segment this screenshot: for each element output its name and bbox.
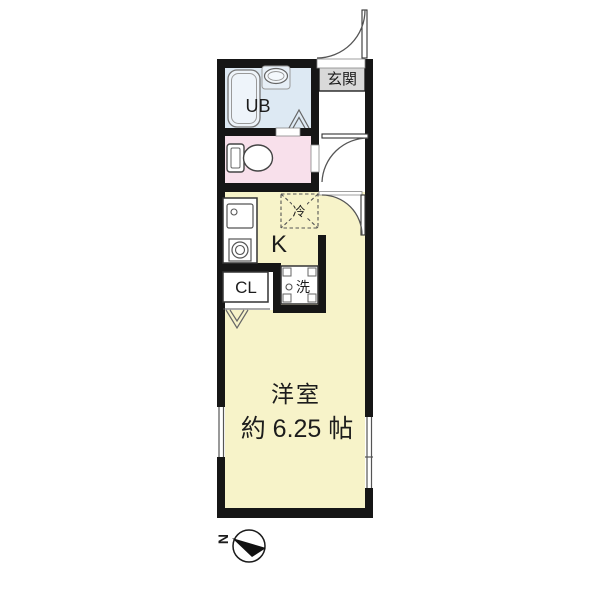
wall-ub-bottom-left [217, 128, 276, 136]
wall-ub-bottom-right [300, 128, 319, 136]
floor-plan-drawing: N 玄関 UB K 冷 CL 洗 洋室 約 6.25 帖 [0, 0, 600, 600]
bathroom-sink [262, 66, 290, 89]
washing-machine-label: 洗 [296, 279, 310, 295]
kitchen-counter [223, 198, 257, 263]
kitchen-label: K [271, 231, 287, 258]
ub-door-opening [276, 128, 300, 136]
wall-toilet-right-top [311, 136, 319, 145]
toilet-door-opening [311, 145, 319, 172]
kitchen-door-threshold [319, 192, 362, 196]
wall-right-upper [365, 59, 373, 417]
main-room-name: 洋室 [271, 381, 321, 407]
wall-kitchen-closet [217, 263, 281, 272]
wall-toilet-right-bottom [311, 172, 319, 183]
window-right [365, 417, 373, 488]
compass-north-label: N [215, 534, 231, 544]
main-room-size: 約 6.25 帖 [241, 415, 354, 443]
floor-plan: N 玄関 UB K 冷 CL 洗 洋室 約 6.25 帖 [0, 0, 600, 600]
window-left [217, 407, 225, 457]
refrigerator-label: 冷 [292, 204, 305, 219]
wall-toilet-bottom [217, 183, 319, 192]
kitchen-sink [227, 204, 253, 228]
wall-washer-bottom [273, 305, 326, 313]
kitchen-burner [229, 239, 251, 261]
toilet [227, 144, 273, 172]
wall-bottom [217, 508, 373, 518]
entrance-label: 玄関 [327, 71, 357, 88]
compass: N [215, 530, 266, 562]
wall-ub-hall-divider [311, 68, 319, 128]
closet-label: CL [235, 278, 257, 297]
wall-right-lower [365, 488, 373, 510]
entrance-door [317, 10, 367, 58]
kitchen-faucet [231, 209, 237, 215]
wall-left-lower [217, 457, 225, 508]
unit-bath-label: UB [245, 96, 270, 116]
wall-washer-right [318, 235, 326, 313]
entrance-door-opening [317, 59, 365, 68]
toilet-door [322, 134, 368, 182]
